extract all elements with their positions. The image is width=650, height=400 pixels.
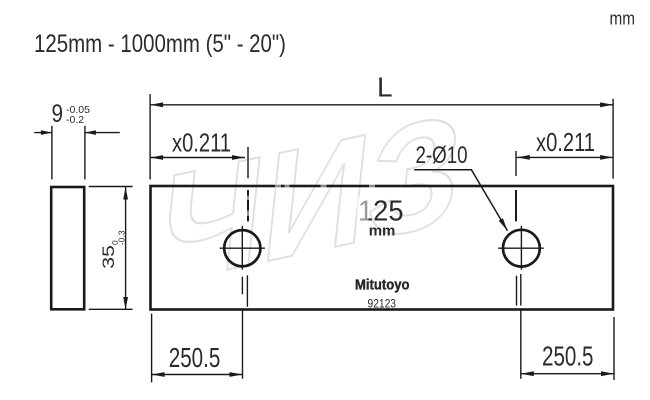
svg-text:mm: mm bbox=[610, 8, 636, 28]
svg-text:250.5: 250.5 bbox=[542, 341, 594, 372]
svg-text:35: 35 bbox=[99, 245, 118, 269]
svg-text:125mm - 1000mm (5" - 20"): 125mm - 1000mm (5" - 20") bbox=[34, 30, 286, 58]
svg-text:250.5: 250.5 bbox=[169, 342, 221, 373]
svg-text:-0.2: -0.2 bbox=[66, 114, 84, 126]
svg-text:Mitutoyo: Mitutoyo bbox=[355, 278, 410, 294]
svg-text:x0.211: x0.211 bbox=[536, 127, 595, 157]
svg-text:x0.211: x0.211 bbox=[172, 127, 231, 157]
svg-text:mm: mm bbox=[369, 223, 396, 240]
svg-text:92123: 92123 bbox=[368, 296, 397, 310]
svg-text:2-Ø10: 2-Ø10 bbox=[416, 142, 468, 169]
svg-text:L: L bbox=[377, 72, 393, 103]
svg-text:9: 9 bbox=[52, 100, 64, 128]
svg-text:ЧИЗ: ЧИЗ bbox=[152, 79, 471, 318]
svg-text:-0.3: -0.3 bbox=[117, 230, 127, 245]
